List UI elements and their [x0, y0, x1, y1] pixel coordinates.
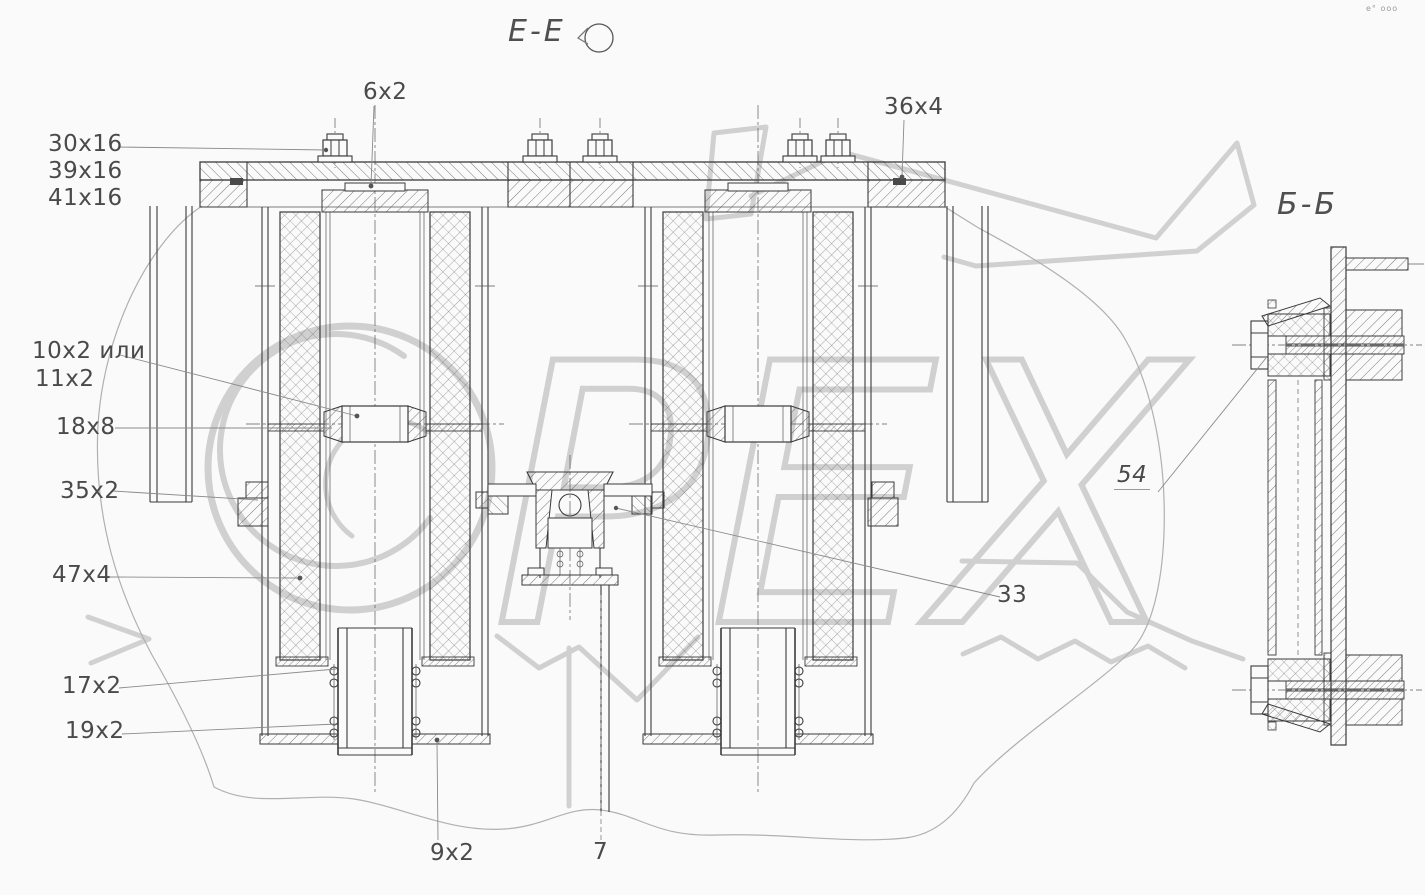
callout-10x2-or: 10х2 или — [32, 339, 145, 363]
drawing-canvas: .ln{stroke:#3b3b3b;stroke-width:1.1;fill… — [0, 0, 1425, 895]
callout-17x2: 17х2 — [62, 674, 122, 698]
callout-47x4: 47х4 — [52, 563, 112, 587]
callout-54: 54 — [1114, 463, 1150, 490]
drawing-sheet: .ln{stroke:#3b3b3b;stroke-width:1.1;fill… — [0, 0, 1425, 895]
view-rotation-icon — [578, 24, 613, 52]
bolt-group — [318, 118, 855, 168]
callout-39x16: 39х16 — [48, 159, 123, 183]
callout-9x2: 9х2 — [430, 841, 474, 865]
section-b-upper-axle — [1232, 298, 1422, 380]
callout-19x2: 19х2 — [65, 719, 125, 743]
section-title: Б-Б — [1277, 189, 1338, 221]
callout-11x2: 11х2 — [35, 367, 95, 391]
left-assembly — [246, 105, 504, 795]
callout-6x2: 6х2 — [363, 80, 407, 104]
view-title: Е-Е — [508, 16, 566, 48]
section-b-rails — [1268, 380, 1322, 655]
section-b-view — [1232, 247, 1424, 745]
callout-41x16: 41х16 — [48, 186, 123, 210]
callout-18x8: 18х8 — [56, 415, 116, 439]
callout-33: 33 — [997, 583, 1027, 607]
top-plate — [200, 162, 945, 207]
section-b-lower-axle — [1232, 653, 1422, 732]
callout-7: 7 — [593, 840, 608, 864]
callout-30x16: 30х16 — [48, 132, 123, 156]
corner-mark: e° ooo — [1366, 5, 1398, 13]
callout-36x4: 36х4 — [884, 95, 944, 119]
callout-35x2: 35х2 — [60, 479, 120, 503]
